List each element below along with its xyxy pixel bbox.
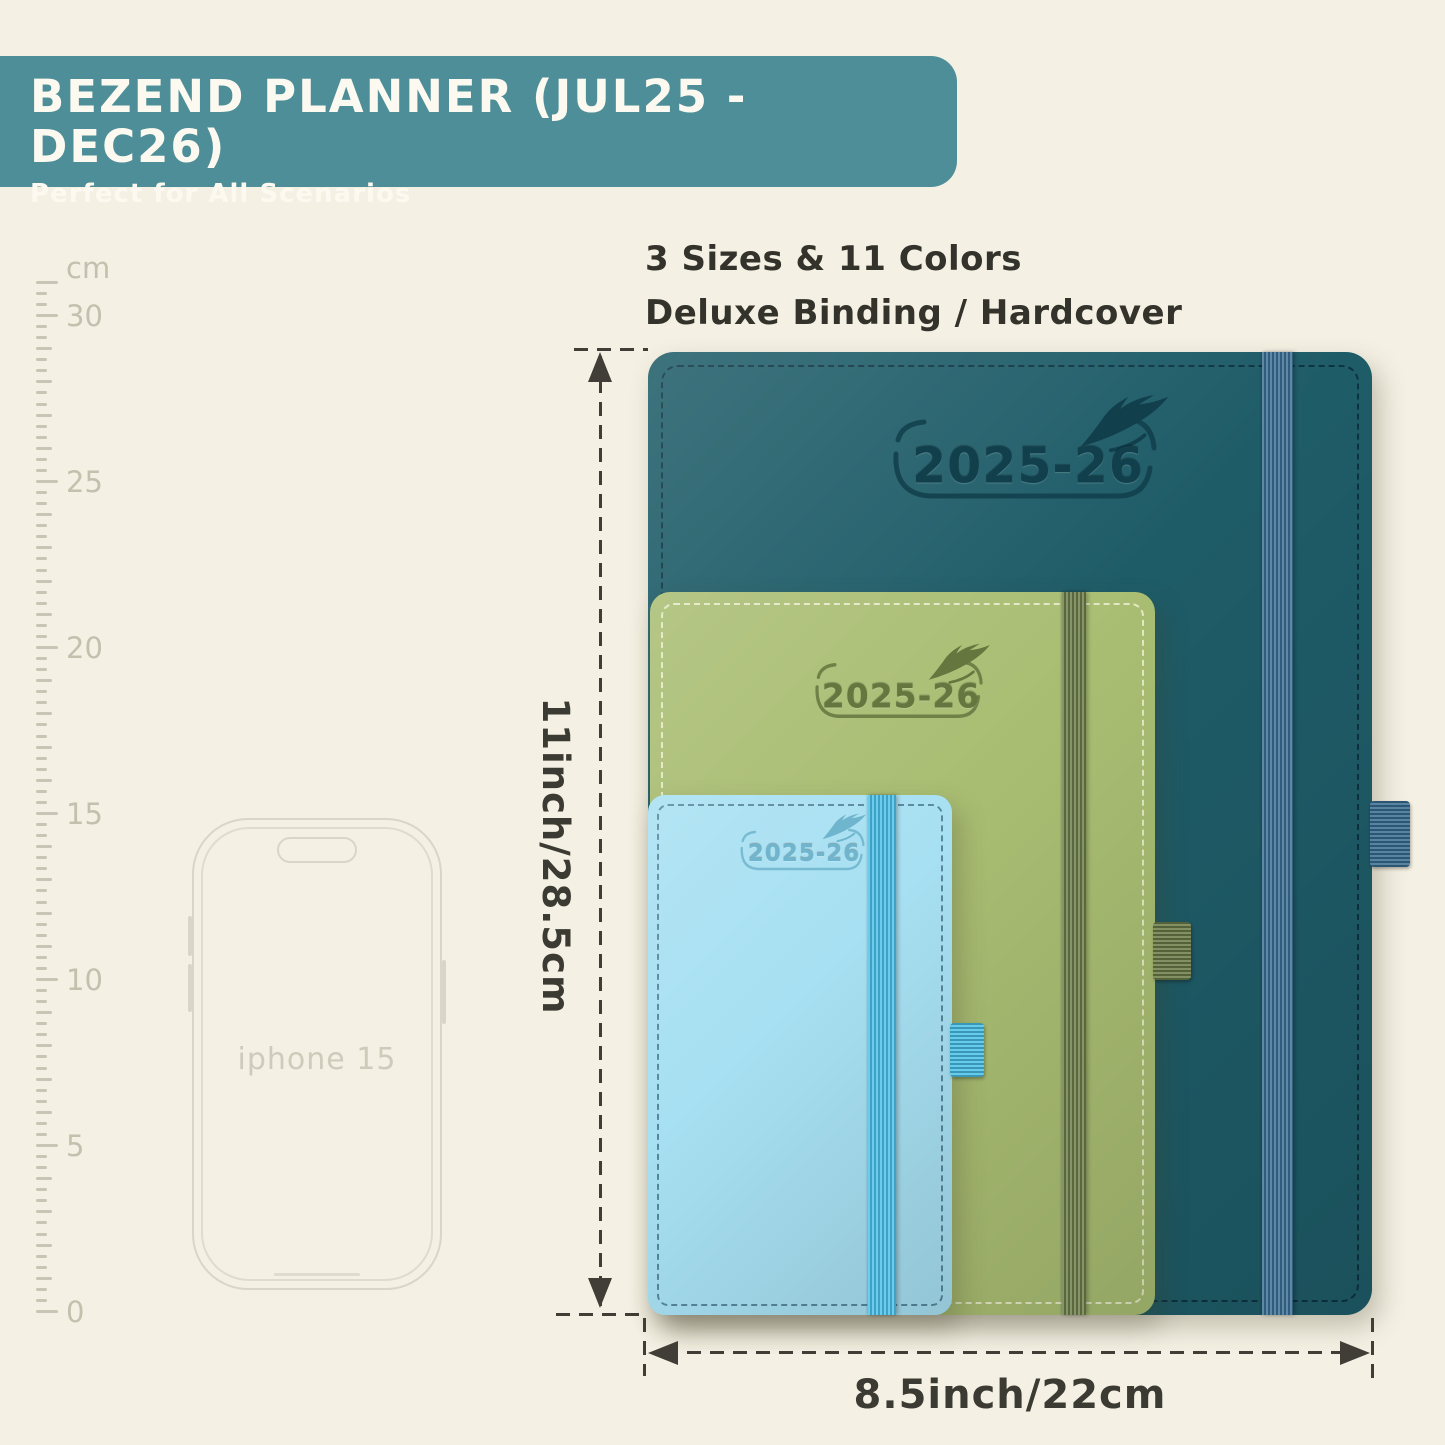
width-dimension-left-tick: [643, 1318, 646, 1376]
ruler-tick: [36, 923, 47, 926]
ruler-tick: [36, 768, 47, 771]
arrow-left-icon: [648, 1341, 678, 1365]
planner-small: 2025-26: [648, 795, 952, 1315]
page-title: BEZEND PLANNER (JUL25 - DEC26): [30, 72, 957, 171]
ruler-tick: [36, 491, 47, 494]
ruler-tick: [36, 856, 47, 859]
ruler-tick: [36, 380, 52, 383]
ruler-tick: [36, 447, 52, 450]
ruler-tick: [36, 746, 52, 749]
ruler-tick: [36, 414, 52, 417]
ruler-tick: [36, 1122, 47, 1125]
ruler-tick: [36, 535, 47, 538]
height-dimension-label: 11inch/28.5cm: [535, 646, 577, 1066]
ruler-tick: [36, 1155, 47, 1158]
width-dimension-line: [664, 1351, 1352, 1354]
iphone-outline: iphone 15: [192, 818, 442, 1290]
iphone-label: iphone 15: [194, 1042, 440, 1077]
ruler-tick: [36, 668, 47, 671]
ruler-tick: [36, 458, 47, 461]
ruler-tick-label: 15: [66, 797, 126, 831]
ruler-tick: [36, 1067, 47, 1070]
ruler-tick-label: 5: [66, 1129, 126, 1163]
ruler-tick: [36, 613, 52, 616]
year-label: 2025-26: [912, 438, 1144, 495]
ruler-tick: [36, 845, 52, 848]
ruler-tick: [36, 834, 47, 837]
ruler-tick: [36, 1022, 47, 1025]
dynamic-island-icon: [277, 837, 357, 863]
ruler-tick: [36, 1310, 58, 1313]
ruler-tick: [36, 369, 47, 372]
ruler-tick: [36, 679, 52, 682]
iphone-volume-button-icon: [188, 916, 192, 956]
ruler-tick: [36, 978, 58, 981]
iphone-power-button-icon: [442, 960, 446, 1024]
elastic-band: [1062, 592, 1086, 1315]
ruler-tick: [36, 358, 47, 361]
ruler-tick: [36, 314, 58, 317]
arrow-up-icon: [588, 352, 612, 382]
year-label: 2025-26: [748, 841, 861, 867]
ruler-tick: [36, 1011, 52, 1014]
ruler-tick: [36, 646, 58, 649]
feature-text: 3 Sizes & 11 Colors Deluxe Binding / Har…: [645, 232, 1182, 340]
ruler-tick: [36, 513, 52, 516]
ruler-tick: [36, 1244, 52, 1247]
ruler-tick-label: 20: [66, 631, 126, 665]
ruler-tick: [36, 657, 47, 660]
pen-loop: [1370, 801, 1410, 867]
iphone-port-icon: [274, 1273, 360, 1276]
elastic-band: [1262, 352, 1293, 1315]
ruler-tick: [36, 934, 47, 937]
ruler-tick: [36, 635, 47, 638]
ruler-tick: [36, 1277, 52, 1280]
width-dimension-label: 8.5inch/22cm: [820, 1372, 1200, 1418]
ruler-tick: [36, 1221, 47, 1224]
ruler-tick: [36, 956, 47, 959]
ruler-tick: [36, 591, 47, 594]
ruler-tick-label: 0: [66, 1295, 126, 1329]
ruler-tick: [36, 1133, 47, 1136]
ruler-tick: [36, 480, 58, 483]
ruler-tick: [36, 403, 47, 406]
ruler-tick: [36, 557, 47, 560]
ruler-tick: [36, 1288, 47, 1291]
elastic-band: [868, 795, 896, 1315]
ruler-tick: [36, 757, 47, 760]
planner-medium-logo: 2025-26: [812, 655, 990, 733]
arrow-right-icon: [1340, 1341, 1370, 1365]
ruler-tick: [36, 712, 52, 715]
height-dimension-top-tick: [574, 348, 648, 351]
ruler-tick: [36, 1100, 47, 1103]
page-subtitle: Perfect for All Scenarios: [30, 179, 957, 209]
iphone-volume-button-icon: [188, 964, 192, 1012]
ruler-tick: [36, 336, 47, 339]
ruler-tick: [36, 967, 47, 970]
ruler-tick: [36, 901, 47, 904]
ruler-tick: [36, 878, 52, 881]
ruler-tick: [36, 1089, 47, 1092]
height-dimension-line: [599, 356, 602, 1306]
feature-line-sizes: 3 Sizes & 11 Colors: [645, 232, 1182, 286]
planner-small-logo: 2025-26: [738, 825, 870, 881]
ruler-tick: [36, 779, 52, 782]
ruler-tick: [36, 801, 47, 804]
ruler-tick: [36, 292, 47, 295]
product-image: BEZEND PLANNER (JUL25 - DEC26) Perfect f…: [0, 0, 1445, 1445]
ruler-tick: [36, 391, 47, 394]
ruler-tick: [36, 569, 47, 572]
ruler-tick: [36, 325, 47, 328]
width-dimension-right-tick: [1371, 1318, 1374, 1380]
title-banner: BEZEND PLANNER (JUL25 - DEC26) Perfect f…: [0, 56, 957, 187]
ruler-tick: [36, 735, 47, 738]
ruler-tick: [36, 1000, 47, 1003]
ruler-tick: [36, 436, 47, 439]
ruler-tick: [36, 1044, 52, 1047]
ruler-tick: [36, 469, 47, 472]
ruler-tick-label: 25: [66, 465, 126, 499]
ruler-tick: [36, 912, 52, 915]
ruler-tick-label: 10: [66, 963, 126, 997]
ruler-tick-label: 30: [66, 299, 126, 333]
ruler-tick: [36, 1299, 47, 1302]
ruler-tick: [36, 790, 47, 793]
ruler-tick: [36, 502, 47, 505]
pen-loop: [950, 1023, 984, 1077]
ruler-tick: [36, 303, 47, 306]
ruler-tick: [36, 945, 52, 948]
ruler-tick: [36, 1166, 47, 1169]
ruler-tick: [36, 347, 52, 350]
ruler-tick: [36, 701, 47, 704]
ruler-tick: [36, 1111, 52, 1114]
ruler-tick: [36, 823, 47, 826]
ruler-tick: [36, 580, 52, 583]
ruler-tick: [36, 1188, 47, 1191]
arrow-down-icon: [588, 1278, 612, 1308]
ruler-tick: [36, 1233, 47, 1236]
ruler-tick: [36, 1177, 52, 1180]
ruler-tick: [36, 425, 47, 428]
ruler-tick: [36, 1199, 47, 1202]
ruler-tick: [36, 812, 58, 815]
ruler-tick: [36, 602, 47, 605]
ruler-tick: [36, 524, 47, 527]
ruler-tick: [36, 1055, 47, 1058]
planner-large-logo: 2025-26: [888, 408, 1168, 520]
ruler-tick: [36, 1255, 47, 1258]
ruler-tick: [36, 1266, 47, 1269]
height-dimension-bottom-tick: [556, 1313, 648, 1316]
ruler-tick: [36, 281, 58, 284]
ruler-tick: [36, 690, 47, 693]
ruler-tick: [36, 1078, 52, 1081]
ruler-tick: [36, 889, 47, 892]
ruler-tick: [36, 546, 52, 549]
ruler-tick: [36, 1033, 47, 1036]
ruler-tick: [36, 1210, 52, 1213]
feather-icon: [820, 813, 868, 843]
year-label: 2025-26: [822, 676, 980, 715]
ruler-tick: [36, 723, 47, 726]
ruler-unit-label: cm: [66, 251, 110, 285]
ruler-tick: [36, 1144, 58, 1147]
ruler-tick: [36, 867, 47, 870]
feature-line-binding: Deluxe Binding / Hardcover: [645, 286, 1182, 340]
ruler-tick: [36, 989, 47, 992]
pen-loop: [1153, 922, 1191, 980]
ruler: cm 051015202530: [36, 258, 156, 1343]
ruler-tick: [36, 624, 47, 627]
